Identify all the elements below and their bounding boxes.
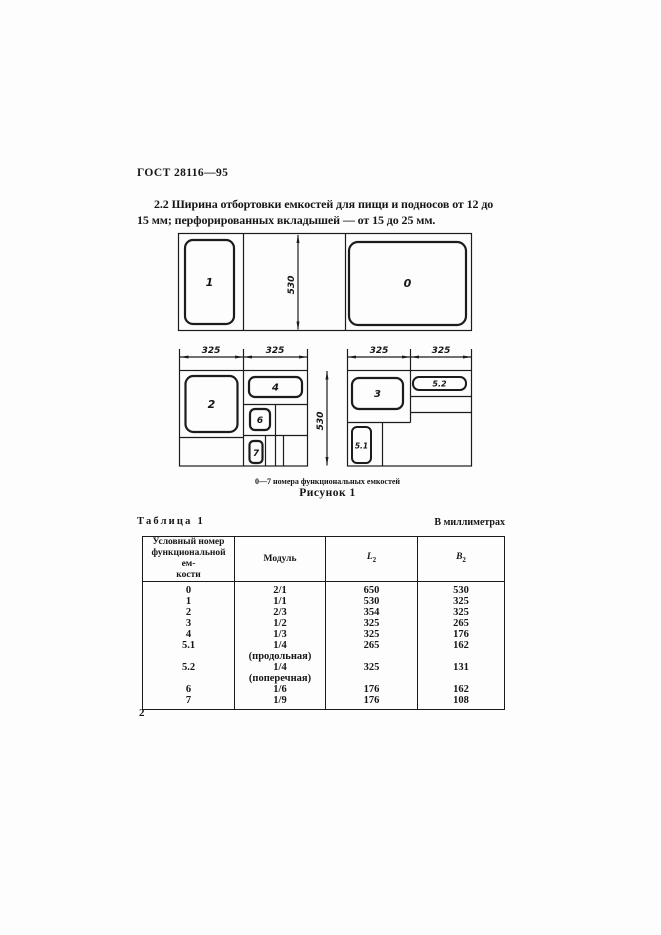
table-row: 5.11/4 (продольная)265162	[143, 640, 505, 662]
table-cell-module: 1/2	[235, 618, 326, 629]
table-cell-num: 3	[143, 618, 235, 629]
table-cell-b: 176	[418, 629, 505, 640]
table-cell-module: 1/9	[235, 695, 326, 710]
paragraph-line-1: 2.2 Ширина отбортовки емкостей для пищи …	[154, 197, 493, 212]
dim-325-d: 325	[432, 346, 451, 356]
table-cell-num: 6	[143, 684, 235, 695]
table-row: 71/9176108	[143, 695, 505, 710]
table-cell-num: 7	[143, 695, 235, 710]
figure-label-5-2: 5.2	[432, 380, 447, 389]
table-row: 31/2325265	[143, 618, 505, 629]
header-l2-subscript: 2	[373, 556, 377, 564]
figure-caption: Рисунок 1	[160, 487, 495, 499]
table-cell-b: 162	[418, 640, 505, 662]
table-title: Таблица 1	[137, 516, 205, 527]
dim-530-bottom: 530	[316, 412, 326, 431]
table-cell-b: 325	[418, 596, 505, 607]
table-cell-num: 5.1	[143, 640, 235, 662]
table-cell-l: 354	[326, 607, 418, 618]
dim-325-b: 325	[266, 346, 285, 356]
table-units: В миллиметрах	[434, 517, 505, 528]
header-container-number: Условный номер функциональной ем- кости	[143, 537, 235, 582]
figure-label-1: 1	[206, 276, 214, 289]
table-cell-b: 108	[418, 695, 505, 710]
table-cell-num: 2	[143, 607, 235, 618]
figure-label-6: 6	[257, 416, 263, 426]
table-header-row: Условный номер функциональной ем- кости …	[143, 537, 505, 582]
header-l2: L2	[326, 537, 418, 582]
table-cell-l: 176	[326, 684, 418, 695]
figure-drawing: 1 0 2 4 6 7 3 5.2 5.1 530 530 325 325 32…	[160, 230, 495, 472]
table-row: 61/6176162	[143, 684, 505, 695]
figure-label-0: 0	[404, 277, 412, 290]
figure-label-7: 7	[253, 449, 260, 459]
table-cell-module: 1/6	[235, 684, 326, 695]
figure-label-3: 3	[374, 389, 381, 400]
paragraph-line-2: 15 мм; перфорированных вкладышей — от 15…	[137, 213, 435, 228]
tray-grid-top	[179, 234, 472, 331]
table-row: 5.21/4 (поперечная)325131	[143, 662, 505, 684]
tray-grid-bottom-right	[348, 371, 472, 467]
table-cell-l: 176	[326, 695, 418, 710]
table-cell-l: 650	[326, 582, 418, 597]
figure-label-5-1: 5.1	[355, 442, 368, 451]
header-module: Модуль	[235, 537, 326, 582]
table-cell-module: 1/1	[235, 596, 326, 607]
table-cell-module: 2/3	[235, 607, 326, 618]
table-cell-b: 131	[418, 662, 505, 684]
table-row: 41/3325176	[143, 629, 505, 640]
table-cell-num: 1	[143, 596, 235, 607]
table-row: 22/3354325	[143, 607, 505, 618]
table-cell-module: 1/4 (поперечная)	[235, 662, 326, 684]
table-cell-l: 530	[326, 596, 418, 607]
dimension-table: Условный номер функциональной ем- кости …	[142, 536, 505, 710]
table-cell-b: 530	[418, 582, 505, 597]
table-cell-l: 325	[326, 618, 418, 629]
table-cell-l: 265	[326, 640, 418, 662]
figure-note: 0—7 номера функциональных емкостей	[160, 477, 495, 486]
table-cell-b: 325	[418, 607, 505, 618]
table-row: 11/1530325	[143, 596, 505, 607]
table-cell-num: 5.2	[143, 662, 235, 684]
page-number: 2	[139, 707, 145, 719]
dim-530-top: 530	[287, 276, 297, 295]
table-cell-num: 0	[143, 582, 235, 597]
standard-code: ГОСТ 28116—95	[137, 167, 228, 179]
table-row: 02/1650530	[143, 582, 505, 597]
table-cell-module: 1/4 (продольная)	[235, 640, 326, 662]
table-cell-num: 4	[143, 629, 235, 640]
dim-325-c: 325	[370, 346, 389, 356]
table-cell-b: 265	[418, 618, 505, 629]
table-cell-module: 2/1	[235, 582, 326, 597]
table-cell-l: 325	[326, 629, 418, 640]
figure-label-2: 2	[208, 398, 216, 411]
document-page: ГОСТ 28116—95 2.2 Ширина отбортовки емко…	[0, 0, 661, 935]
header-b2-subscript: 2	[462, 556, 466, 564]
table-body: 02/165053011/153032522/335432531/2325265…	[143, 582, 505, 710]
table-cell-b: 162	[418, 684, 505, 695]
table-cell-module: 1/3	[235, 629, 326, 640]
header-b2: B2	[418, 537, 505, 582]
figure-label-4: 4	[271, 383, 279, 394]
table-cell-l: 325	[326, 662, 418, 684]
dim-325-a: 325	[202, 346, 221, 356]
